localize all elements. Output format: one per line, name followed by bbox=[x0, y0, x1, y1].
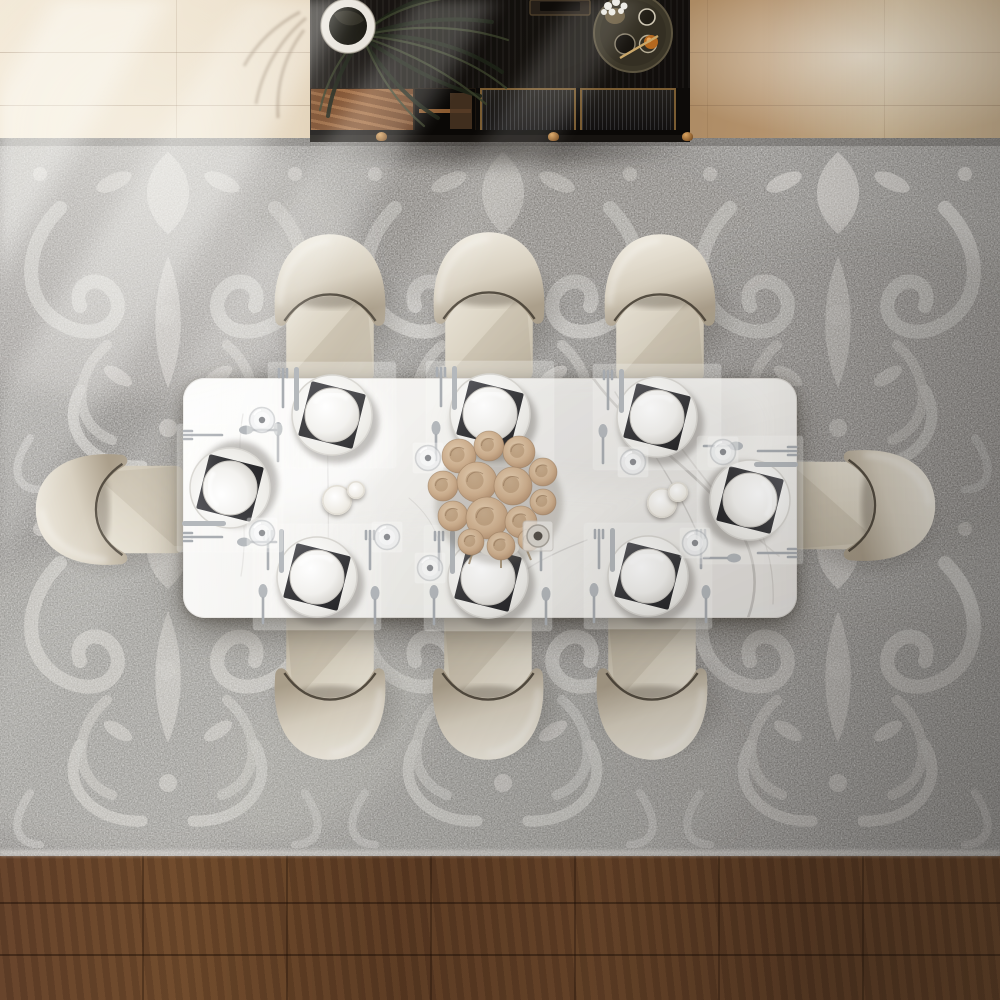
sideboard-decor bbox=[240, 0, 760, 142]
glass-tumbler bbox=[639, 9, 655, 25]
pillar-candle-4 bbox=[668, 482, 688, 502]
flower-centerpiece bbox=[417, 418, 587, 588]
glass-votive bbox=[523, 521, 553, 551]
sideboard-leg-1 bbox=[376, 132, 387, 141]
rug-bottom-edge bbox=[0, 850, 1000, 856]
wine-glass-4 bbox=[245, 516, 279, 550]
wine-glass-7 bbox=[678, 526, 712, 560]
wine-glass-1 bbox=[245, 403, 279, 437]
wine-glass-8 bbox=[706, 435, 740, 469]
wine-glass-3 bbox=[616, 445, 650, 479]
planter-pot bbox=[321, 0, 375, 53]
pillar-candle-2 bbox=[347, 481, 365, 499]
wood-floor-bottom bbox=[0, 852, 1000, 1000]
sideboard bbox=[310, 0, 690, 142]
chair-left-end bbox=[29, 444, 184, 576]
chair-right-end bbox=[788, 440, 943, 572]
sideboard-leg-3 bbox=[682, 132, 693, 141]
sideboard-leg-2 bbox=[548, 132, 559, 141]
dining-room-scene bbox=[0, 0, 1000, 1000]
serving-tray bbox=[594, 0, 672, 72]
wine-glass-5 bbox=[370, 520, 404, 554]
